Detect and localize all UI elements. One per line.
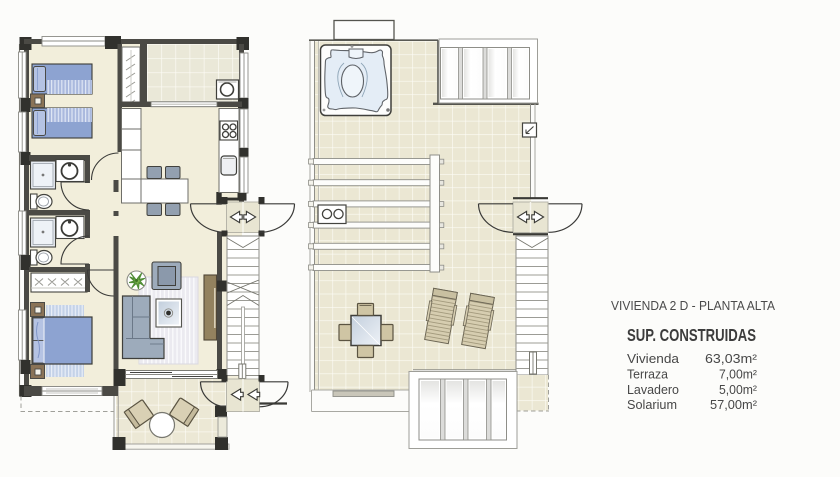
svg-text:Terraza: Terraza: [627, 367, 669, 382]
svg-text:63,03m²: 63,03m²: [705, 351, 758, 366]
svg-text:VIVIENDA 2 D - PLANTA ALTA: VIVIENDA 2 D - PLANTA ALTA: [611, 299, 776, 313]
svg-text:57,00m²: 57,00m²: [710, 397, 758, 412]
svg-text:SUP. CONSTRUIDAS: SUP. CONSTRUIDAS: [627, 325, 756, 345]
svg-text:Lavadero: Lavadero: [627, 382, 679, 397]
svg-text:7,00m²: 7,00m²: [719, 367, 758, 382]
svg-text:Vivienda: Vivienda: [627, 351, 680, 366]
svg-text:Solarium: Solarium: [627, 397, 677, 412]
svg-text:5,00m²: 5,00m²: [719, 382, 758, 397]
